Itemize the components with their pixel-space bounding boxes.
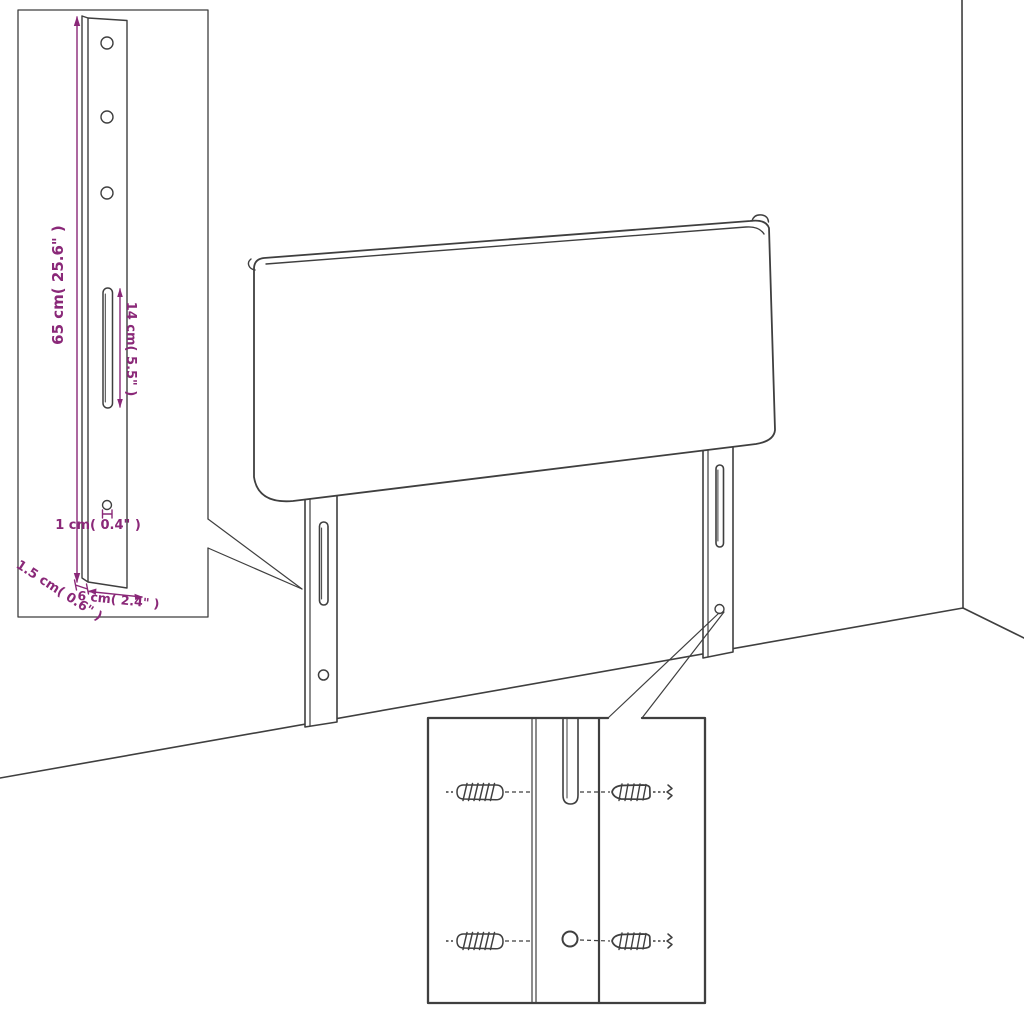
left-leg-bracket — [305, 476, 337, 727]
callout-leader-left — [208, 519, 302, 589]
dimension-slot: 14 cm( 5.5" ) — [117, 288, 138, 408]
diagram-canvas: 65 cm( 25.6" ) 14 cm( 5.5" ) 1 cm( 0.4" … — [0, 0, 1024, 1024]
headboard — [248, 215, 775, 501]
headboard-dimension-diagram: 65 cm( 25.6" ) 14 cm( 5.5" ) 1 cm( 0.4" … — [0, 0, 1024, 1024]
leader-line — [642, 612, 724, 718]
headboard-panel — [254, 221, 775, 502]
bracket-dimension-detail: 65 cm( 25.6" ) 14 cm( 5.5" ) 1 cm( 0.4" … — [13, 10, 208, 624]
wall-corner-line — [962, 0, 963, 608]
dimension-slot-label: 14 cm( 5.5" ) — [123, 302, 138, 397]
floor-line-right — [963, 608, 1024, 638]
dimension-height-label: 65 cm( 25.6" ) — [49, 225, 67, 345]
leader-line — [608, 613, 719, 718]
mounting-hardware-detail — [428, 718, 705, 1003]
right-leg-bracket — [703, 442, 733, 658]
dimension-hole-label: 1 cm( 0.4" ) — [55, 518, 141, 533]
